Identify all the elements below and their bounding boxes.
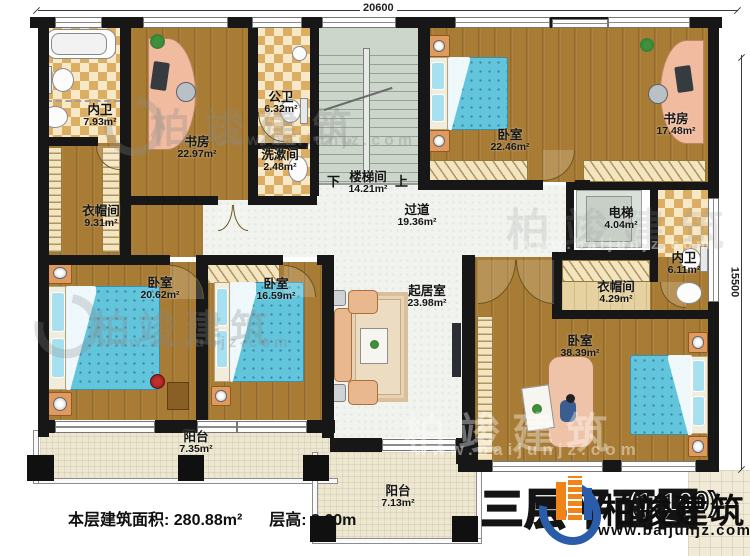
- room-label-washroom: 洗漱间 2.48m²: [261, 148, 299, 174]
- window: [708, 198, 719, 302]
- dimension-tick: [734, 7, 741, 14]
- sink: [292, 46, 307, 61]
- window: [55, 421, 155, 433]
- room-area: 16.59m²: [256, 291, 295, 303]
- pillar: [27, 455, 54, 481]
- room-area: 6.11m²: [668, 265, 701, 277]
- side-table: [332, 290, 346, 306]
- brand-logo-icon: [540, 472, 600, 538]
- toilet-tank: [300, 98, 308, 124]
- person-figure: [560, 400, 576, 422]
- floor-plan: 柏竣建筑 www.baijunjz.com 柏竣建筑 www.baijunjz.…: [0, 0, 750, 556]
- nightstand: [48, 262, 72, 284]
- plant: [640, 38, 654, 52]
- floor-corridor-main: [317, 185, 462, 262]
- wall-bedrooms-top: [205, 255, 283, 265]
- room-area: 38.39m²: [560, 348, 599, 360]
- room-area: 20.62m²: [140, 290, 179, 302]
- room-label-bedroom-master: 卧室 38.39m²: [560, 334, 599, 360]
- plant: [150, 34, 165, 49]
- nightstand: [688, 332, 708, 353]
- wall-elevator-left: [566, 182, 574, 258]
- room-name: 卧室: [256, 277, 295, 291]
- stair-rail: [363, 48, 370, 182]
- nightstand: [428, 130, 450, 152]
- person-head: [566, 394, 575, 403]
- room-area: 6.32m²: [264, 104, 297, 116]
- room-name: 内卫: [83, 103, 116, 117]
- room-name: 书房: [177, 135, 216, 149]
- wall-washroom-bottom: [248, 196, 317, 205]
- wall-elevator-top: [566, 182, 708, 190]
- bed-sheet: [448, 57, 470, 130]
- nightstand: [211, 386, 231, 406]
- room-area: 14.21m²: [348, 184, 387, 196]
- brand-url: www.baijunjz.com: [598, 522, 750, 539]
- side-table: [332, 384, 346, 402]
- wall-bottom-right: [603, 460, 621, 472]
- logo-building-icon: [584, 488, 592, 520]
- room-label-corridor: 过道 19.36m²: [397, 203, 436, 229]
- room-area: 19.36m²: [397, 217, 436, 229]
- wall-bottom-right: [696, 460, 710, 472]
- dimension-right-value: 15500: [728, 264, 740, 301]
- wall-study-publicbath: [248, 27, 258, 198]
- computer-monitor: [674, 65, 693, 93]
- room-label-bedroom-suite: 卧室 22.46m²: [490, 128, 529, 154]
- room-label-cloak1: 衣帽间 9.31m²: [82, 204, 120, 230]
- desk-chair: [176, 82, 196, 102]
- room-label-bedroom2: 卧室 16.59m²: [256, 277, 295, 303]
- room-label-public-bath: 公卫 6.32m²: [264, 90, 297, 116]
- wall-living-master: [462, 255, 475, 462]
- wall-cloak2-top: [552, 252, 658, 260]
- floor-height-text: 层高: 3.60m: [269, 512, 356, 529]
- pillow: [431, 62, 445, 90]
- room-name: 阳台: [179, 430, 212, 444]
- room-name: 衣帽间: [597, 280, 635, 294]
- pillow: [431, 94, 445, 122]
- room-area: 4.29m²: [597, 294, 635, 306]
- room-name: 阳台: [381, 484, 414, 498]
- wall-left: [38, 17, 49, 437]
- room-label-bath2: 内卫 6.11m²: [668, 251, 701, 277]
- wall-bottom-left: [38, 420, 55, 433]
- window: [143, 17, 228, 28]
- floor-area-text: 本层建筑面积: 280.88m²: [68, 512, 242, 529]
- nightstand: [688, 436, 708, 457]
- window: [608, 17, 690, 28]
- room-label-livingroom: 起居室 23.98m²: [407, 284, 446, 310]
- window: [621, 461, 696, 472]
- room-area: 22.46m²: [490, 142, 529, 154]
- sofa-main: [334, 308, 352, 382]
- window: [55, 17, 102, 28]
- stool: [150, 374, 165, 389]
- stair-down-label: 下: [327, 171, 340, 190]
- closet-bedroom-suite: [427, 160, 528, 182]
- pillow: [216, 330, 228, 368]
- wall-bedrooms-top: [38, 255, 170, 265]
- room-label-study2: 书房 17.48m²: [656, 112, 695, 138]
- closet-cloak2: [562, 260, 650, 282]
- room-area: 7.13m²: [381, 498, 414, 510]
- window: [492, 461, 603, 472]
- room-label-bath1: 内卫 7.93m²: [83, 103, 116, 129]
- room-label-balcony1: 阳台 7.35m²: [179, 430, 212, 456]
- room-name: 楼梯间: [348, 170, 387, 184]
- wall-master-top: [552, 310, 708, 319]
- closet-master-left: [477, 316, 493, 462]
- window: [322, 17, 396, 28]
- wall-stair-suite: [418, 27, 430, 183]
- wall-publicbath-stair: [310, 27, 319, 196]
- room-label-bedroom1: 卧室 20.62m²: [140, 276, 179, 302]
- room-label-stairwell: 楼梯间 14.21m²: [348, 170, 387, 196]
- small-table: [167, 382, 189, 410]
- room-label-cloak2: 衣帽间 4.29m²: [597, 280, 635, 306]
- room-name: 衣帽间: [82, 204, 120, 218]
- wall-living-bottom: [330, 438, 382, 452]
- wall-cloak2-bath2: [650, 252, 658, 282]
- room-label-elevator: 电梯 4.04m²: [604, 206, 637, 232]
- wall-suite-bottom: [418, 180, 543, 190]
- room-area: 22.97m²: [177, 149, 216, 161]
- wall-study1-bottom: [130, 196, 218, 205]
- dimension-top-value: 20600: [360, 2, 397, 14]
- pillow: [692, 396, 705, 426]
- room-name: 内卫: [668, 251, 701, 265]
- closet-study2: [583, 160, 706, 182]
- room-name: 过道: [397, 203, 436, 217]
- room-name: 公卫: [264, 90, 297, 104]
- bath1-divider: [46, 100, 120, 102]
- room-name: 起居室: [407, 284, 446, 298]
- window: [252, 17, 302, 28]
- room-area: 17.48m²: [656, 126, 695, 138]
- window: [552, 19, 608, 28]
- pillar: [178, 455, 204, 481]
- window: [237, 421, 307, 433]
- window: [455, 17, 550, 28]
- room-area: 2.48m²: [261, 162, 299, 174]
- window: [382, 439, 456, 451]
- room-label-study1: 书房 22.97m²: [177, 135, 216, 161]
- bathtub-inner: [51, 33, 107, 55]
- nightstand: [48, 392, 72, 416]
- pillow: [216, 288, 228, 326]
- room-name: 卧室: [490, 128, 529, 142]
- logo-building-icon: [568, 476, 582, 522]
- room-label-balcony2: 阳台 7.13m²: [381, 484, 414, 510]
- toilet-tank: [700, 246, 708, 272]
- armchair: [348, 290, 378, 314]
- table-decor: [532, 404, 542, 414]
- table-decor: [370, 340, 379, 349]
- room-area: 7.93m²: [83, 117, 116, 129]
- logo-building-icon: [556, 482, 566, 520]
- wall-elevator-right: [650, 182, 658, 258]
- room-area: 4.04m²: [604, 220, 637, 232]
- footer-stats: 本层建筑面积: 280.88m² 层高: 3.60m: [68, 506, 356, 530]
- room-name: 卧室: [140, 276, 179, 290]
- room-name: 卧室: [560, 334, 599, 348]
- wall-bedroom2-living: [322, 255, 334, 438]
- tv: [452, 323, 461, 377]
- nightstand: [428, 35, 450, 57]
- room-area: 7.35m²: [179, 444, 212, 456]
- bed-sheet: [230, 282, 256, 382]
- room-name: 洗漱间: [261, 148, 299, 162]
- pillar: [303, 455, 329, 481]
- room-name: 电梯: [604, 206, 637, 220]
- desk-chair: [648, 84, 668, 104]
- dimension-line-right: [741, 55, 742, 470]
- room-name: 书房: [656, 112, 695, 126]
- stair-up-label: 上: [395, 171, 408, 190]
- pillar: [452, 516, 478, 542]
- floor-corridor-right: [462, 185, 566, 257]
- room-area: 9.31m²: [82, 218, 120, 230]
- pillow: [692, 360, 705, 392]
- room-area: 23.98m²: [407, 298, 446, 310]
- bed-sheet: [668, 355, 692, 435]
- wall-bath1-cloak1: [38, 137, 98, 146]
- armchair: [348, 380, 378, 405]
- toilet-bowl: [52, 68, 74, 92]
